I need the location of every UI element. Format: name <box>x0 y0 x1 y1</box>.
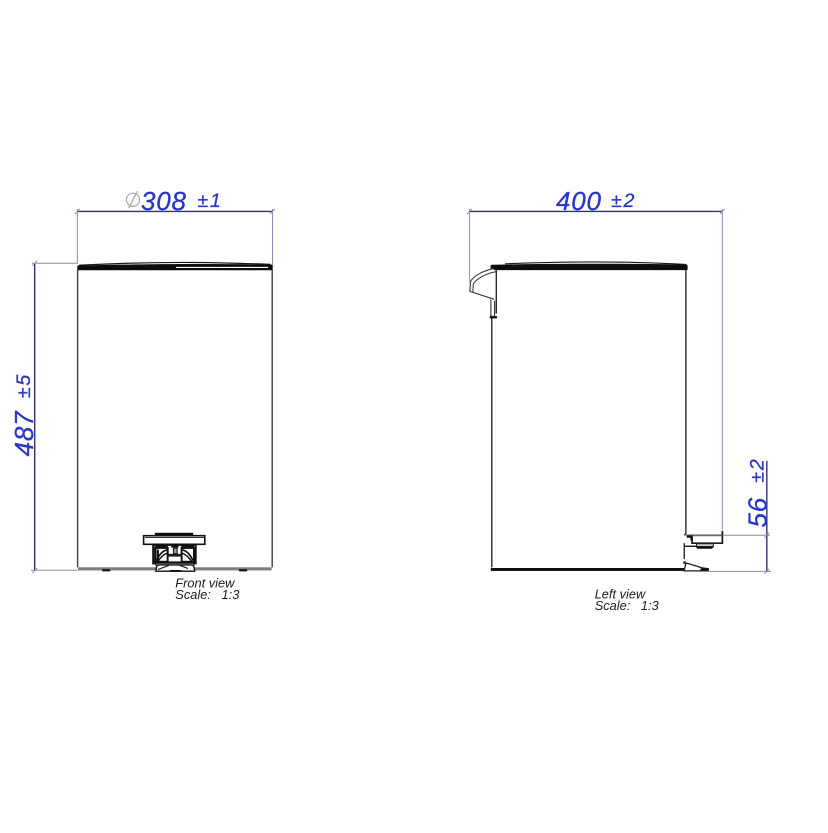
svg-text:487: 487 <box>9 410 39 457</box>
svg-text:±2: ±2 <box>747 457 769 482</box>
svg-text:±2: ±2 <box>611 190 636 212</box>
svg-text:±5: ±5 <box>13 373 35 398</box>
svg-text:308: 308 <box>141 186 187 216</box>
svg-text:±1: ±1 <box>198 190 223 212</box>
svg-text:Scale: 1:3: Scale: 1:3 <box>175 587 239 602</box>
svg-text:Scale: 1:3: Scale: 1:3 <box>595 598 659 613</box>
svg-text:56: 56 <box>742 497 772 528</box>
svg-text:400: 400 <box>556 186 602 216</box>
